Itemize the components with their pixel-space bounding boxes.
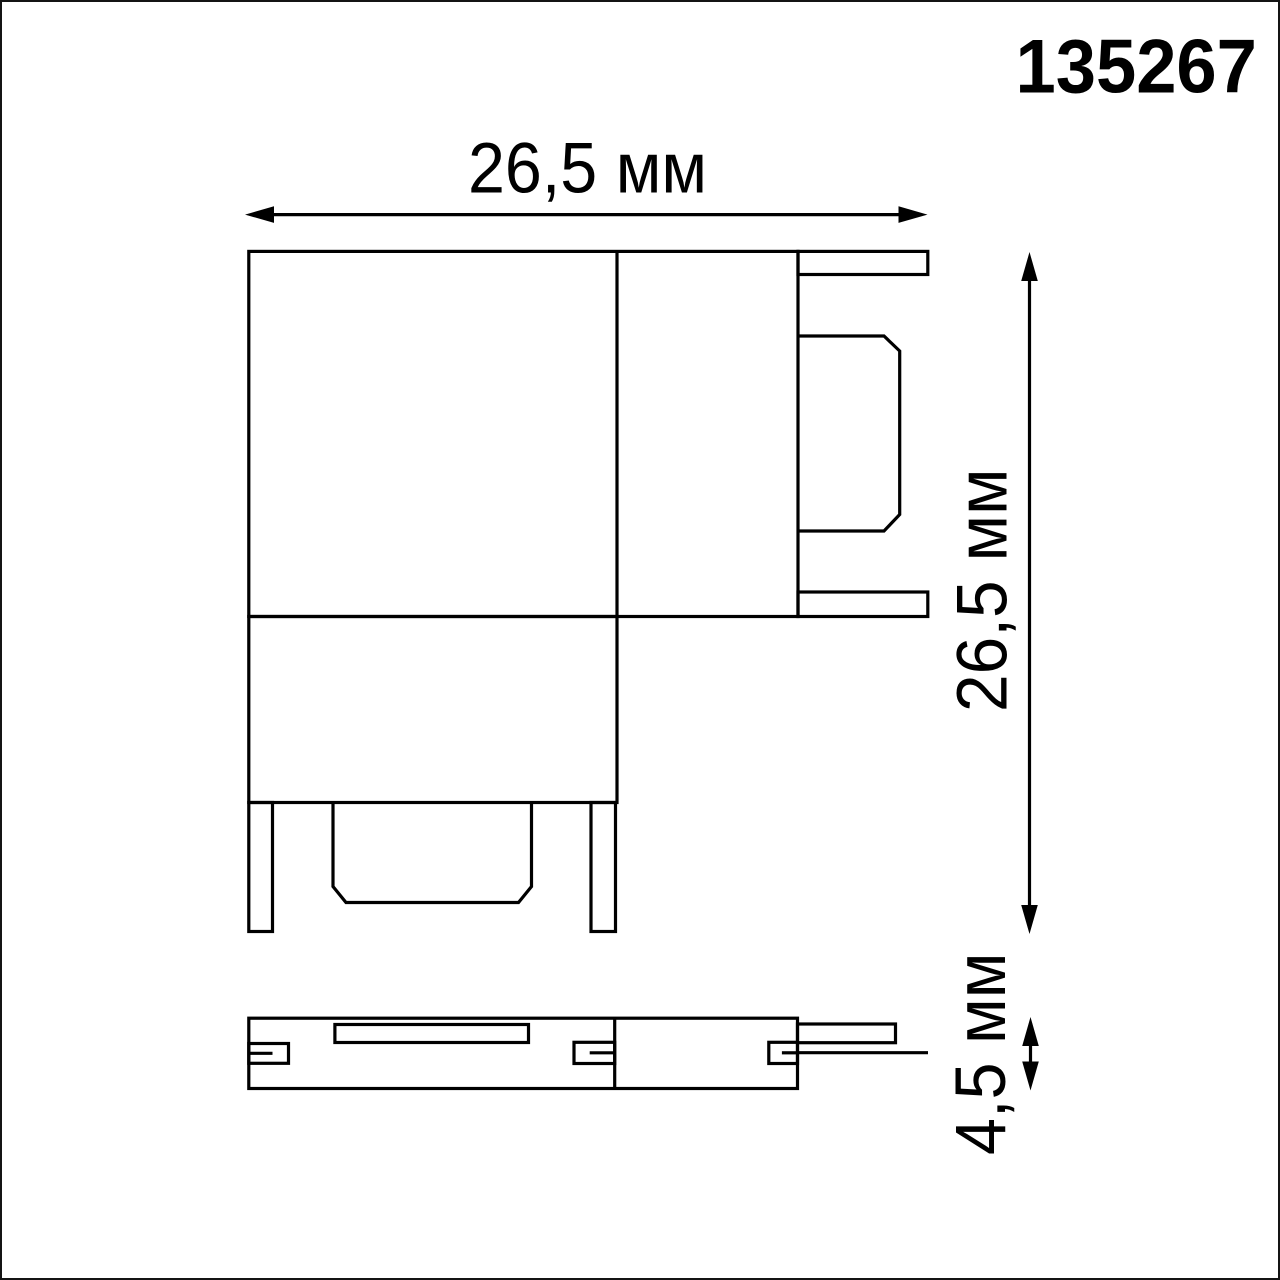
svg-text:26,5 мм: 26,5 мм bbox=[468, 130, 707, 209]
svg-text:26,5 мм: 26,5 мм bbox=[944, 469, 1023, 713]
svg-text:4,5 мм: 4,5 мм bbox=[942, 953, 1021, 1156]
svg-text:135267: 135267 bbox=[1016, 25, 1257, 110]
